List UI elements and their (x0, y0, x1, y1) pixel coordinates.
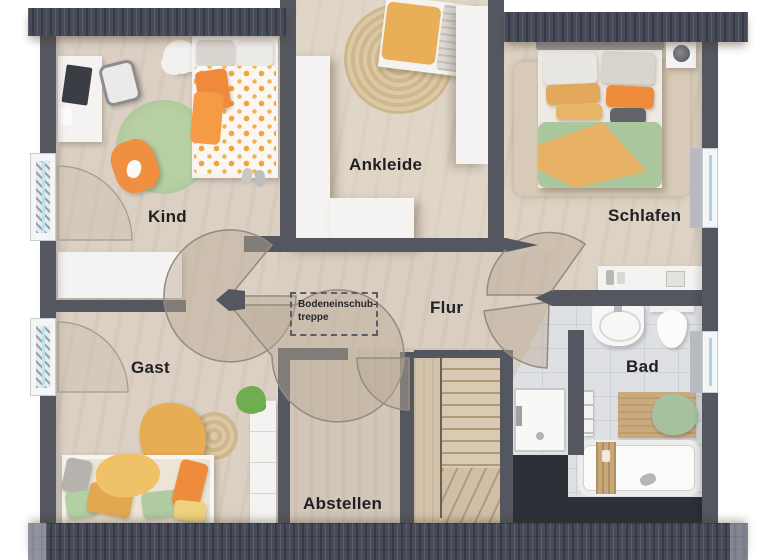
room-label-flur: Flur (430, 298, 463, 318)
room-label-abstellen: Abstellen (303, 494, 382, 514)
window-swing-kind (58, 166, 132, 240)
door-schlafen (487, 232, 585, 295)
door-swing-overlay (0, 0, 768, 560)
floorplan-canvas: Kind Ankleide Schlafen Flur Gast Abstell… (0, 0, 768, 560)
window-swing-gast (58, 322, 128, 392)
room-label-kind: Kind (148, 207, 187, 227)
room-label-bad: Bad (626, 357, 659, 377)
door-bad (484, 302, 549, 368)
attic-ladder-label-line1: Bodeneinschub- (292, 294, 376, 311)
room-label-gast: Gast (131, 358, 170, 378)
room-label-schlafen: Schlafen (608, 206, 681, 226)
attic-ladder-outline: Bodeneinschub- treppe (290, 292, 378, 336)
room-label-ankleide: Ankleide (349, 155, 422, 175)
attic-ladder-label-line2: treppe (292, 311, 376, 324)
